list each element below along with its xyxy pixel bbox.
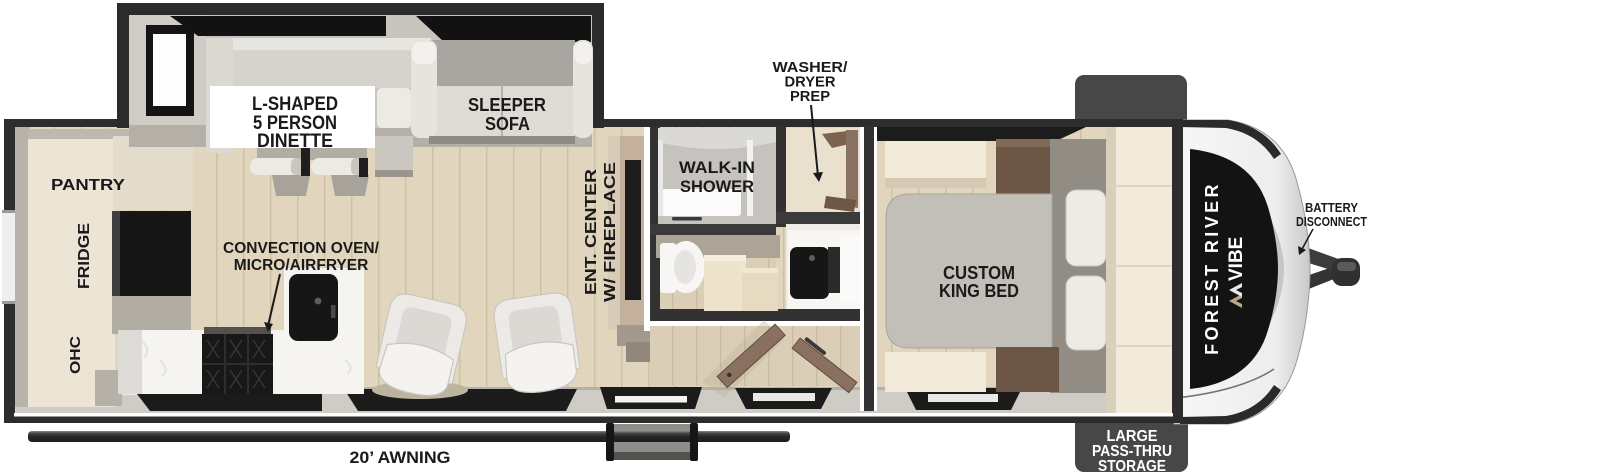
svg-text:SLEEPER: SLEEPER xyxy=(468,94,546,115)
svg-text:DINETTE: DINETTE xyxy=(257,130,333,152)
svg-text:MICRO/AIRFRYER: MICRO/AIRFRYER xyxy=(234,257,369,274)
svg-text:DISCONNECT: DISCONNECT xyxy=(1296,214,1367,229)
svg-text:KING BED: KING BED xyxy=(939,280,1019,301)
svg-text:STORAGE: STORAGE xyxy=(1098,458,1166,475)
svg-text:FRIDGE: FRIDGE xyxy=(76,223,93,289)
svg-text:WALK-IN: WALK-IN xyxy=(679,158,755,177)
svg-text:PANTRY: PANTRY xyxy=(51,177,125,194)
svg-text:SHOWER: SHOWER xyxy=(680,177,754,196)
svg-text:CONVECTION OVEN/: CONVECTION OVEN/ xyxy=(223,240,380,257)
svg-text:20’ AWNING: 20’ AWNING xyxy=(350,449,451,467)
svg-text:FOREST RIVER: FOREST RIVER xyxy=(1202,181,1222,355)
svg-text:OHC: OHC xyxy=(67,336,84,374)
svg-text:W/ FIREPLACE: W/ FIREPLACE xyxy=(602,162,619,302)
svg-text:VIBE: VIBE xyxy=(1226,237,1247,281)
svg-text:ENT. CENTER: ENT. CENTER xyxy=(583,168,600,295)
svg-text:SOFA: SOFA xyxy=(485,113,530,134)
svg-text:BATTERY: BATTERY xyxy=(1305,200,1358,215)
svg-text:PREP: PREP xyxy=(790,89,830,105)
